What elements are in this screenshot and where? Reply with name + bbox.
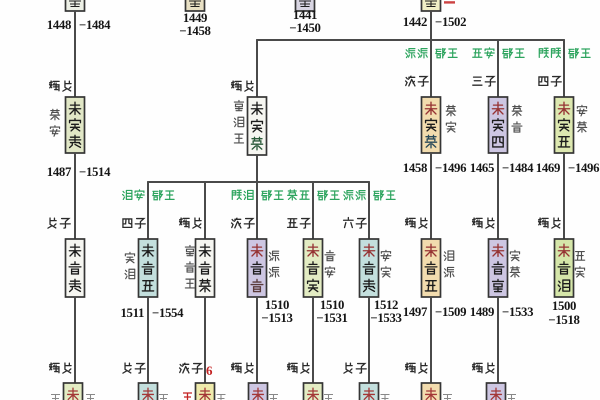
svg-text:−1531: −1531 (316, 311, 347, 325)
svg-text:−1514: −1514 (79, 165, 111, 179)
svg-text:−1502: −1502 (435, 15, 466, 29)
svg-text:−1509: −1509 (435, 305, 466, 319)
svg-text:1510: 1510 (320, 298, 344, 312)
svg-text:−1533: −1533 (370, 311, 401, 325)
svg-text:1489: 1489 (470, 305, 494, 319)
svg-text:1465: 1465 (470, 161, 494, 175)
svg-text:−1450: −1450 (289, 21, 320, 35)
svg-text:−1533: −1533 (502, 305, 533, 319)
svg-text:1441: 1441 (293, 8, 317, 22)
svg-text:1448: 1448 (47, 18, 71, 32)
svg-text:−1554: −1554 (152, 306, 184, 320)
svg-text:1500: 1500 (552, 299, 576, 313)
svg-text:1510: 1510 (265, 298, 289, 312)
svg-text:1487: 1487 (47, 165, 72, 179)
svg-text:−1513: −1513 (261, 311, 292, 325)
svg-text:1449: 1449 (183, 11, 207, 25)
svg-text:−1496: −1496 (568, 161, 600, 175)
svg-text:1458: 1458 (403, 161, 427, 175)
svg-text:−1484: −1484 (79, 18, 111, 32)
svg-text:6: 6 (206, 363, 213, 378)
svg-text:−1518: −1518 (548, 313, 579, 327)
svg-text:−1458: −1458 (179, 24, 210, 38)
svg-text:1511: 1511 (121, 306, 145, 320)
svg-text:1442: 1442 (403, 15, 427, 29)
svg-text:1512: 1512 (374, 298, 398, 312)
svg-text:−1484: −1484 (502, 161, 534, 175)
svg-text:1497: 1497 (403, 305, 428, 319)
svg-text:1469: 1469 (536, 161, 560, 175)
svg-text:−1496: −1496 (435, 161, 467, 175)
